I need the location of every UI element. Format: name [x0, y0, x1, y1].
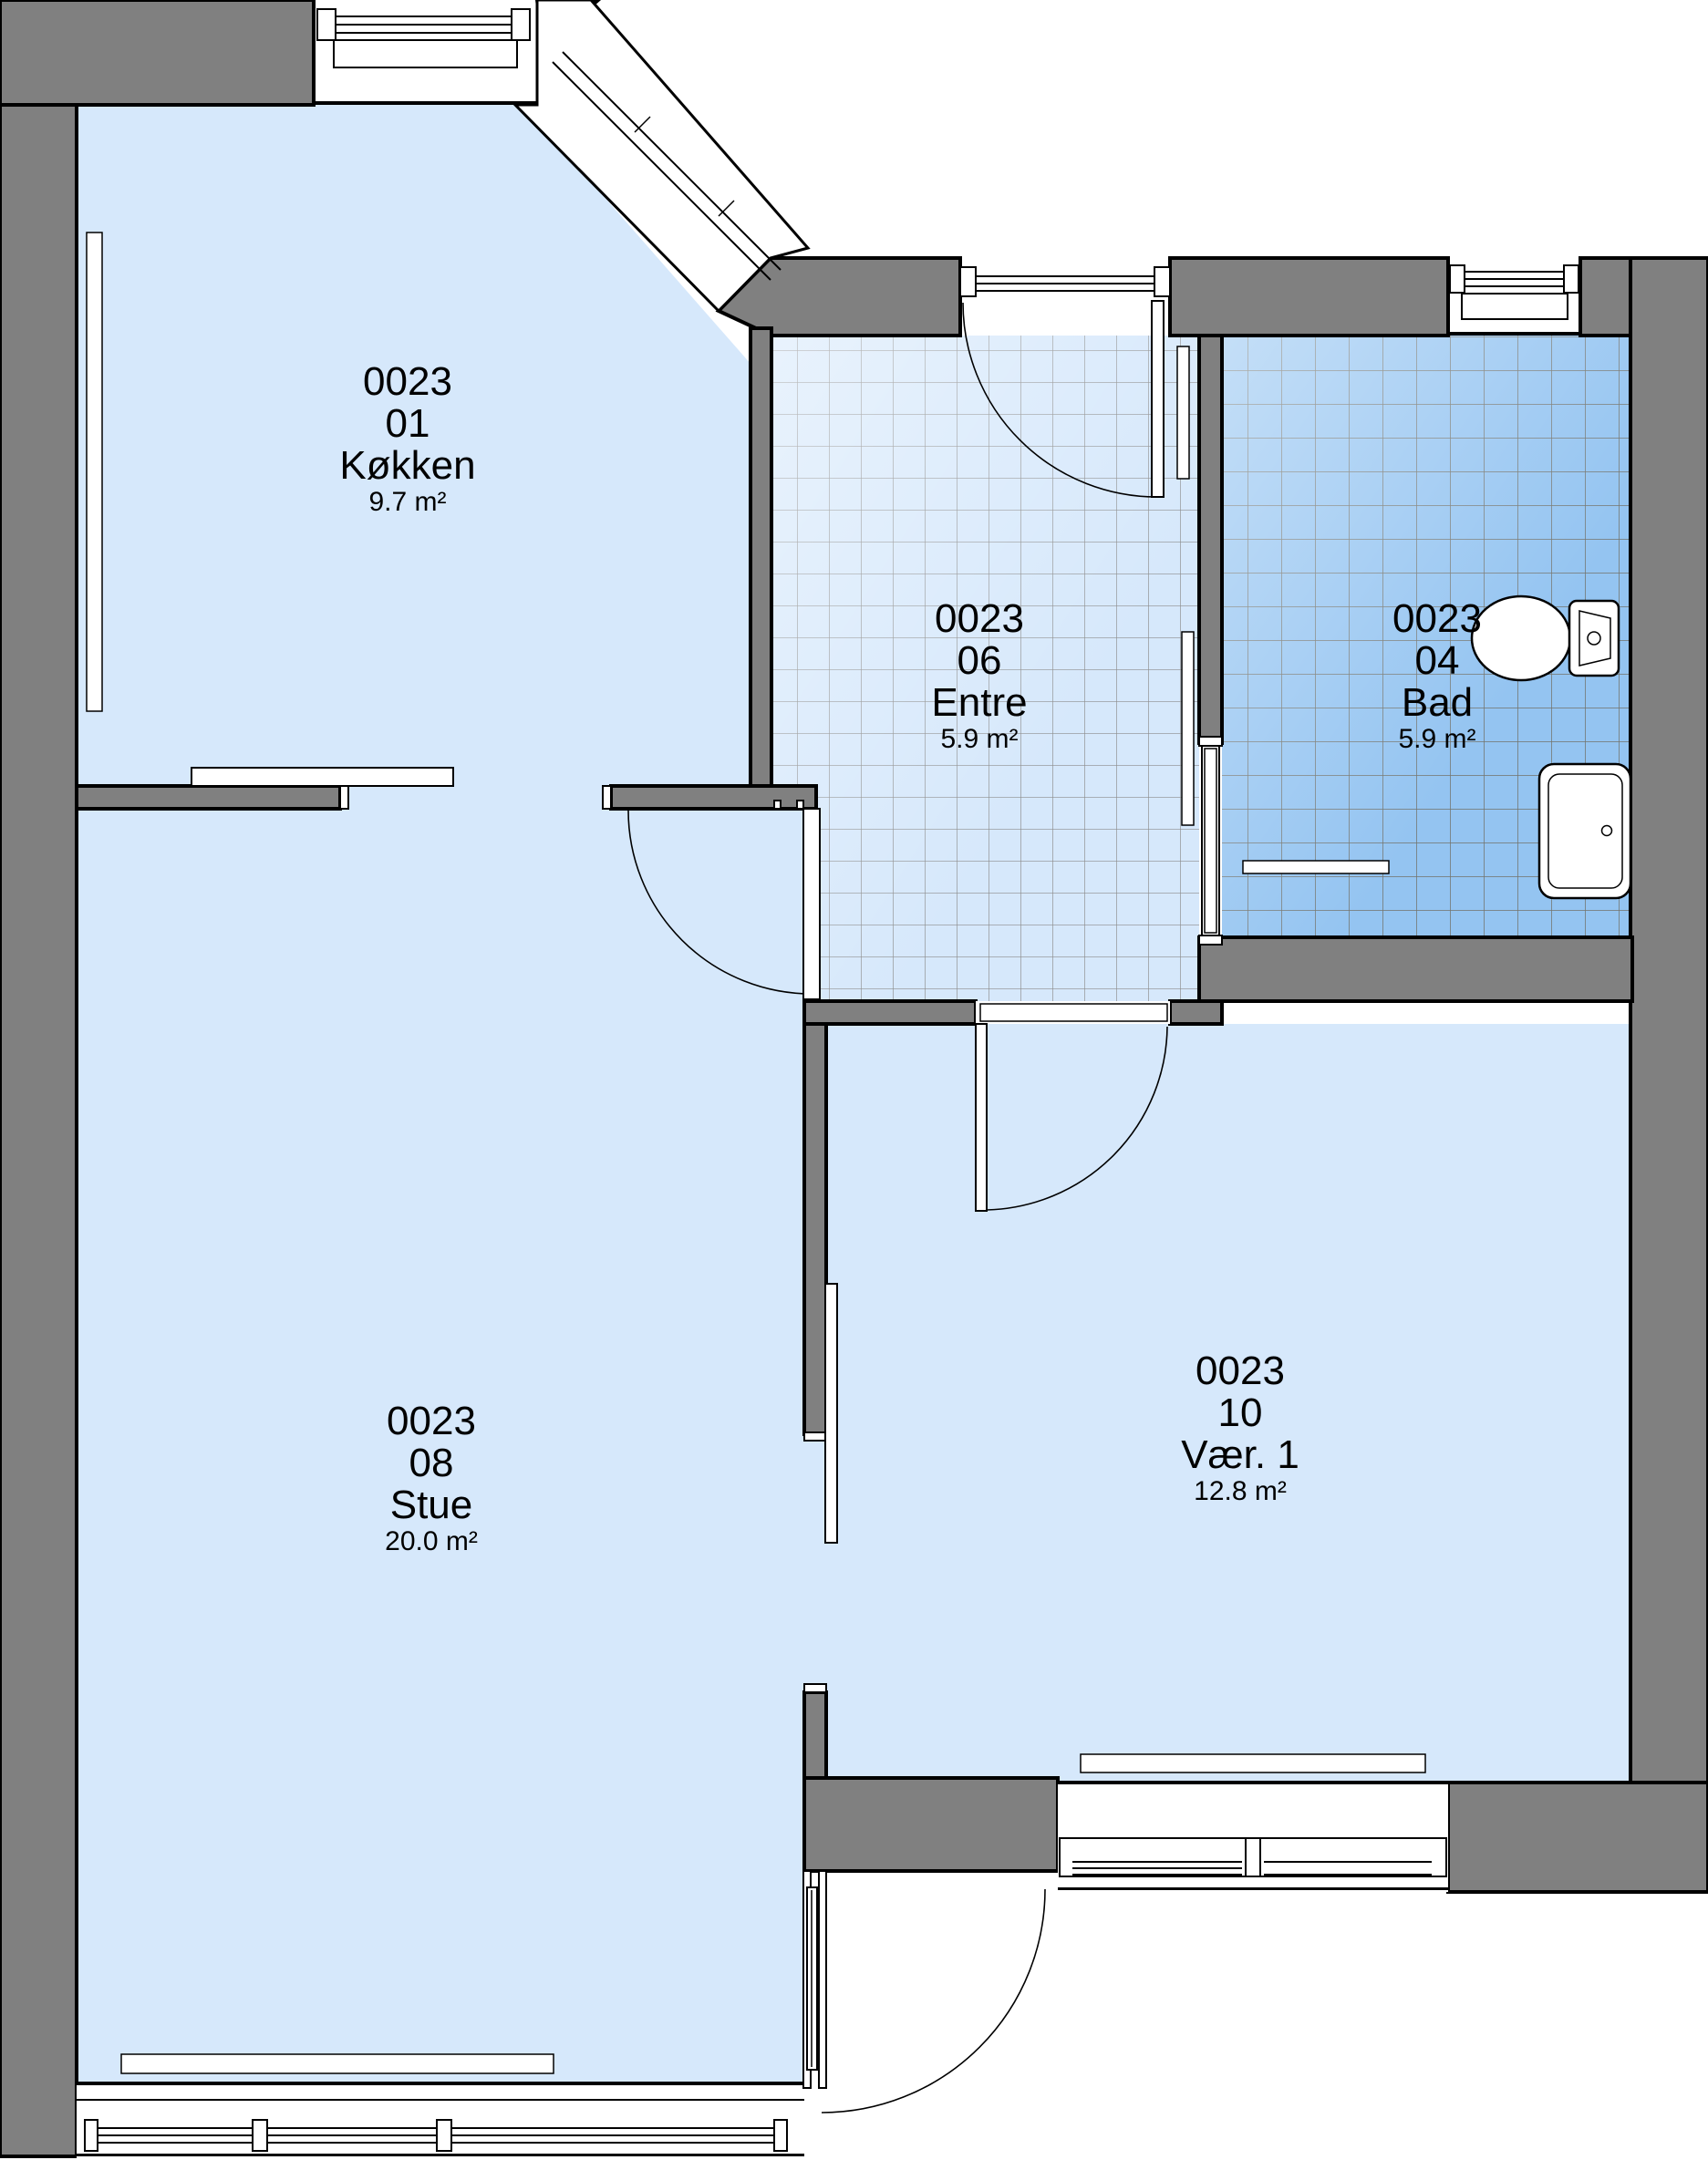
floor-plan: 0023 01 Køkken 9.7 m² 0023 06 Entre 5.9 … [0, 0, 1708, 2160]
room-id: 0023 [339, 361, 475, 403]
room-name: Bad [1392, 682, 1482, 724]
room-number: 08 [385, 1442, 478, 1484]
room-id: 0023 [385, 1400, 478, 1442]
wall-entre-bad-upper [1199, 336, 1222, 743]
sliding-door-kokken-stue [192, 768, 453, 786]
door-jamb-tick [797, 801, 803, 809]
wall-stue-vaer-upper [804, 1024, 826, 1434]
door-bad [1199, 737, 1222, 945]
radiator-kokken-left [87, 233, 102, 711]
wall-kokken-stue-stub [77, 786, 340, 809]
room-name: Stue [385, 1484, 478, 1526]
window-vaer-bottom [1058, 1781, 1448, 1892]
radiator-stue [121, 2054, 554, 2073]
wall-kokken-entre [750, 328, 771, 809]
wall-cap [804, 1432, 826, 1441]
wall-exterior-top-kokken [0, 0, 314, 105]
floor-plan-drawing [0, 0, 1708, 2160]
wall-top-between-door-and-window [1170, 258, 1448, 336]
room-area: 5.9 m² [1392, 724, 1482, 755]
room-area: 5.9 m² [931, 724, 1027, 755]
room-label-vaer: 0023 10 Vær. 1 12.8 m² [1181, 1350, 1299, 1507]
room-number: 06 [931, 640, 1027, 682]
wall-exterior-left [0, 0, 77, 2156]
window-kokken-top [314, 9, 537, 105]
room-name: Vær. 1 [1181, 1434, 1299, 1476]
room-label-entre: 0023 06 Entre 5.9 m² [931, 598, 1027, 755]
wall-entre-bottom-left [804, 1001, 976, 1024]
window-stue-bottom [77, 2082, 804, 2160]
room-name: Entre [931, 682, 1027, 724]
room-id: 0023 [1392, 598, 1482, 640]
radiator-bad [1243, 861, 1389, 873]
wall-cap [603, 786, 611, 809]
toilet-icon [1472, 596, 1619, 680]
wall-stue-vaer-stub [804, 1692, 826, 1778]
wall-balcony-block [804, 1778, 1058, 1871]
room-label-kokken: 0023 01 Køkken 9.7 m² [339, 361, 475, 518]
wall-exterior-right [1630, 258, 1708, 1892]
sink-icon [1539, 764, 1630, 898]
room-area: 20.0 m² [385, 1526, 478, 1557]
door-jamb-tick [774, 801, 781, 809]
door-balcony [803, 1871, 1045, 2113]
room-number: 10 [1181, 1392, 1299, 1434]
wall-bottom-right-block [1448, 1783, 1708, 1892]
doorway-floor-stue-vaer [806, 1434, 826, 1692]
room-area: 12.8 m² [1181, 1476, 1299, 1507]
room-number: 01 [339, 403, 475, 445]
door-stue-vaer [825, 1284, 837, 1543]
wall-cap [804, 1684, 826, 1692]
radiator-entre-upper [1177, 346, 1189, 479]
wall-kokken-stue-segment [611, 786, 816, 809]
radiator-entre-lower [1182, 632, 1194, 825]
room-area: 9.7 m² [339, 487, 475, 518]
room-label-bad: 0023 04 Bad 5.9 m² [1392, 598, 1482, 755]
room-id: 0023 [931, 598, 1027, 640]
room-id: 0023 [1181, 1350, 1299, 1392]
wall-entre-bottom-right [1170, 1001, 1222, 1024]
room-number: 04 [1392, 640, 1482, 682]
room-label-stue: 0023 08 Stue 20.0 m² [385, 1400, 478, 1557]
wall-cap [340, 786, 348, 809]
room-name: Køkken [339, 445, 475, 487]
window-bad-top [1448, 265, 1580, 336]
wall-bad-bottom [1199, 937, 1632, 1001]
radiator-vaer [1081, 1754, 1425, 1772]
